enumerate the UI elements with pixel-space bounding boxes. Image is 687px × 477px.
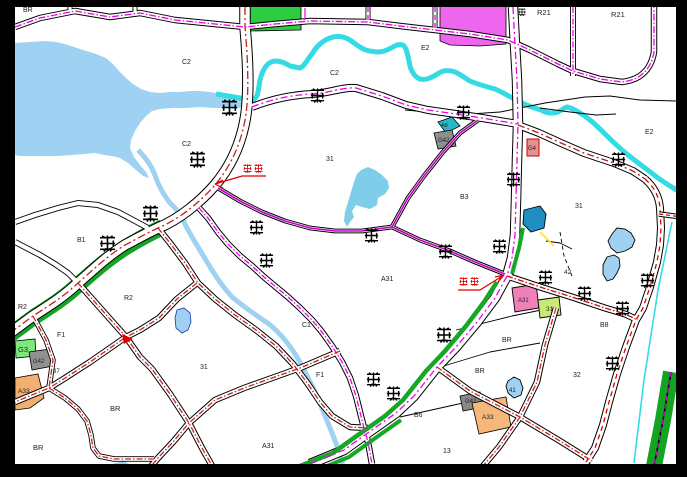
svg-text:R2: R2 (18, 304, 27, 311)
svg-text:A33: A33 (482, 414, 494, 421)
svg-text:C2: C2 (330, 70, 339, 77)
svg-text:G3: G3 (18, 345, 28, 354)
svg-text:BR: BR (110, 404, 121, 413)
svg-text:BR: BR (475, 368, 485, 375)
svg-text:42: 42 (564, 269, 572, 276)
svg-text:B1: B1 (77, 237, 86, 244)
svg-text:G42: G42 (465, 399, 477, 405)
svg-text:F1: F1 (57, 332, 65, 339)
svg-text:C2: C2 (182, 59, 191, 66)
svg-text:BR: BR (33, 443, 44, 452)
svg-text:B6: B6 (414, 412, 423, 419)
svg-text:E2: E2 (421, 45, 430, 52)
svg-text:G4: G4 (528, 146, 537, 152)
svg-text:R2: R2 (124, 295, 133, 302)
svg-text:C2: C2 (182, 141, 191, 148)
svg-text:31: 31 (326, 156, 334, 163)
svg-text:31: 31 (200, 364, 208, 371)
svg-text:R21: R21 (537, 8, 551, 17)
svg-text:13: 13 (443, 448, 451, 455)
svg-text:G42: G42 (438, 138, 450, 144)
svg-text:E2: E2 (645, 129, 654, 136)
svg-text:BR: BR (502, 337, 512, 344)
svg-text:41: 41 (509, 388, 516, 394)
svg-text:BR: BR (23, 7, 33, 14)
svg-text:C1: C1 (302, 322, 311, 329)
svg-text:F1: F1 (316, 372, 324, 379)
svg-text:31: 31 (546, 306, 554, 313)
svg-text:R21: R21 (611, 10, 625, 19)
svg-text:B3: B3 (460, 194, 469, 201)
svg-text:31: 31 (575, 203, 583, 210)
svg-text:B8: B8 (600, 322, 609, 329)
svg-text:32: 32 (573, 372, 581, 379)
svg-text:A8: A8 (441, 123, 448, 129)
svg-text:G42: G42 (33, 359, 45, 365)
svg-text:37: 37 (53, 369, 60, 375)
svg-text:A31: A31 (262, 443, 275, 450)
svg-text:A31: A31 (381, 276, 394, 283)
svg-text:A31: A31 (518, 298, 529, 304)
svg-text:A33: A33 (18, 388, 30, 395)
